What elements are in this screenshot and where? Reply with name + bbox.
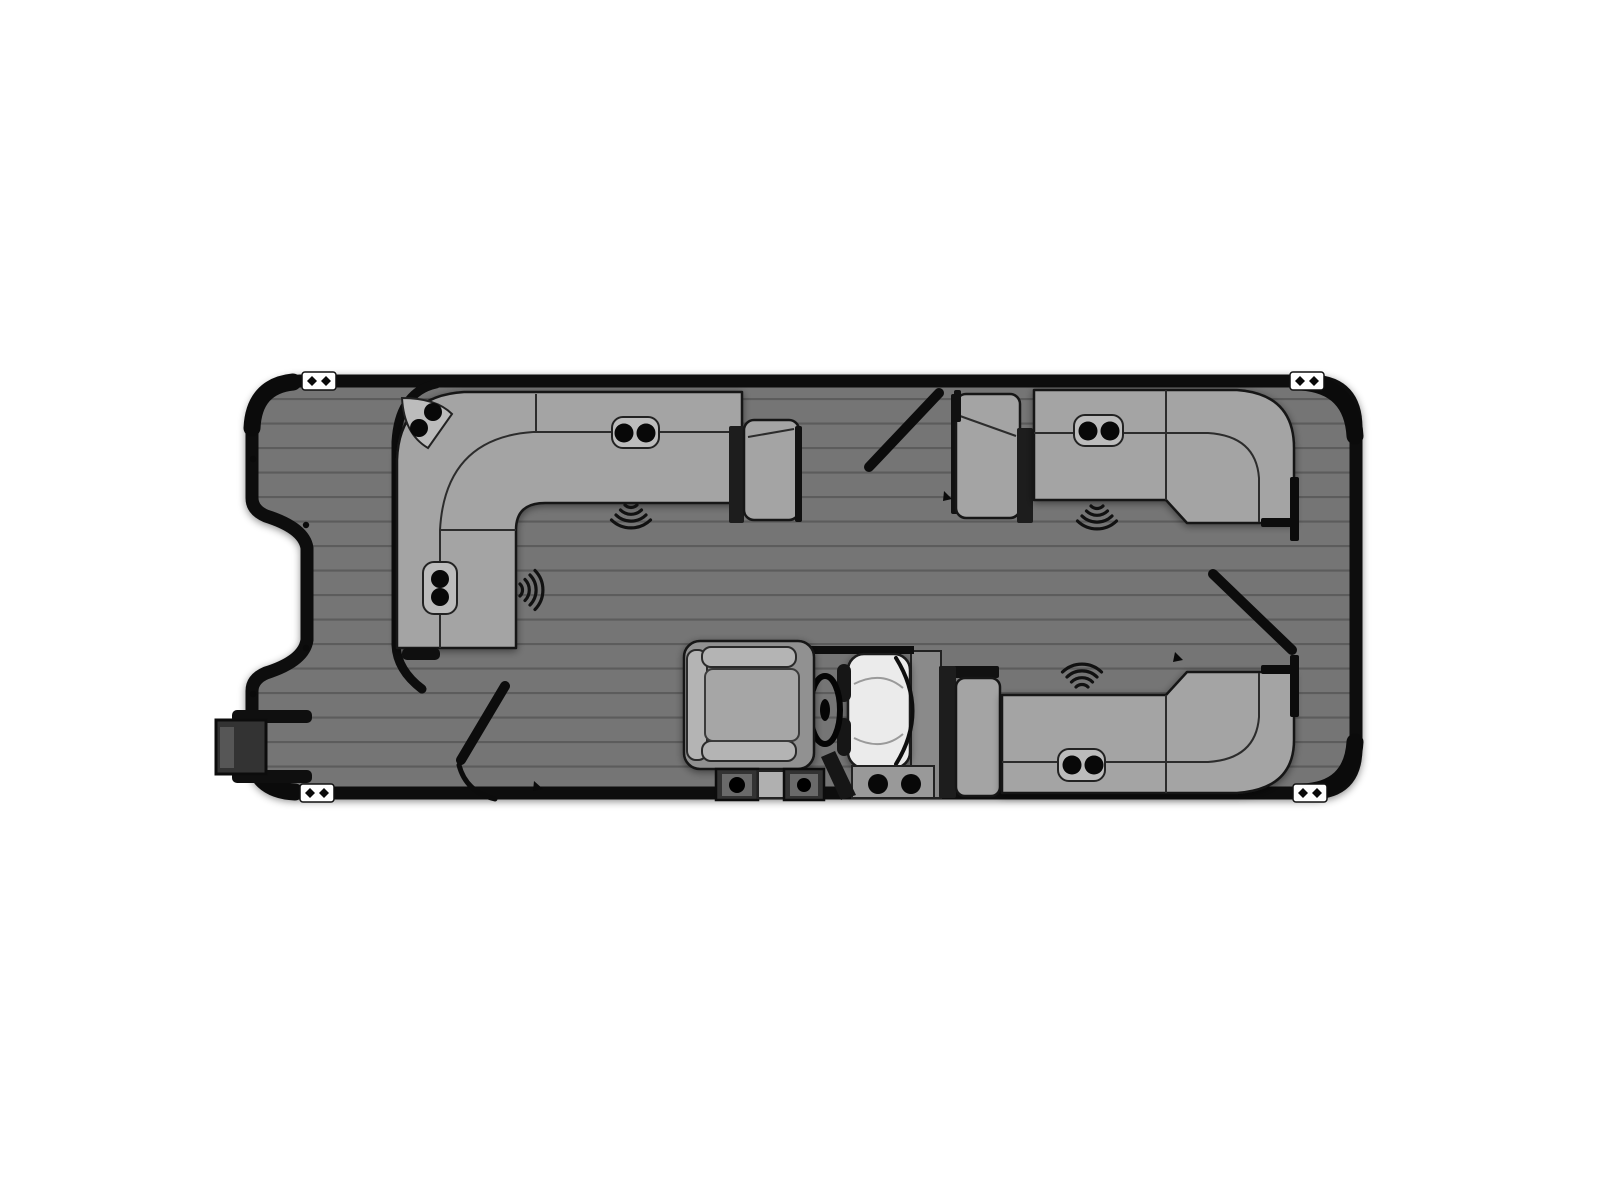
captains-chair	[684, 641, 814, 769]
aft-port-lounge-base-bar	[402, 648, 440, 660]
cupholder-icon	[868, 774, 888, 794]
pontoon-floorplan	[0, 0, 1600, 1200]
cleat-icon	[300, 784, 334, 802]
cupholder-icon	[901, 774, 921, 794]
bow-port-lounge-armrest-divider	[1017, 428, 1033, 523]
helm-top-wall	[810, 646, 914, 654]
cleat-icon	[1290, 372, 1324, 390]
cupholder-icon	[431, 570, 449, 588]
bow-fence-bracket-port	[1261, 518, 1292, 527]
bow-starboard-lounge-side-seat	[956, 678, 1000, 796]
cupholder-icon	[1079, 422, 1098, 441]
stern-ladder-step	[220, 727, 234, 768]
bow-fence-post-port	[1290, 477, 1299, 541]
rail-joint-stud	[303, 645, 309, 651]
chair-armrest-top	[702, 647, 796, 667]
helm-platform	[852, 766, 934, 798]
page	[0, 0, 1600, 1200]
bow-port-lounge-end-seat	[956, 394, 1020, 518]
cupholder-icon	[431, 588, 449, 606]
aft-port-lounge-end-seat	[744, 420, 799, 520]
rail-joint-stud	[250, 456, 256, 462]
helm-step-box-light	[758, 771, 784, 798]
rail-joint-stud	[303, 522, 309, 528]
chair-seat-cushion	[705, 669, 799, 741]
aft-port-lounge-armrest-divider	[729, 426, 744, 523]
cupholder-icon	[797, 778, 811, 792]
port-gate-post	[954, 390, 961, 422]
cleat-icon	[1293, 784, 1327, 802]
cupholder-icon	[729, 777, 745, 793]
bow-starboard-lounge-wall	[939, 666, 956, 798]
cupholder-icon	[424, 403, 442, 421]
bow-fence-bracket-starboard	[1261, 665, 1292, 674]
chair-armrest-bottom	[702, 741, 796, 761]
helm-console	[848, 654, 910, 768]
rail-joint-stud	[250, 691, 256, 697]
cupholder-icon	[1085, 756, 1104, 775]
helm-station	[684, 641, 934, 800]
steering-wheel-hub	[820, 699, 830, 721]
aft-port-lounge-end-cap	[795, 426, 802, 522]
bow-fence-post-starboard	[1290, 655, 1299, 717]
cupholder-icon	[410, 419, 428, 437]
cleat-icon	[302, 372, 336, 390]
cupholder-icon	[1101, 422, 1120, 441]
cupholder-icon	[637, 424, 656, 443]
cupholder-icon	[1063, 756, 1082, 775]
cupholder-icon	[615, 424, 634, 443]
